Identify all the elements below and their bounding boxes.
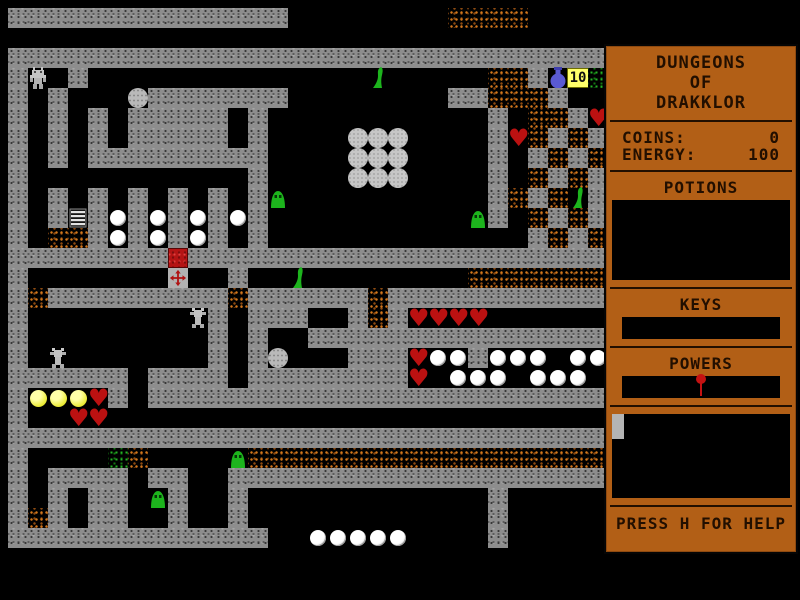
- wall-tile: [488, 168, 508, 188]
- wall-tile: [528, 148, 548, 168]
- wall-tile: [568, 48, 588, 68]
- wall-tile: [8, 428, 28, 448]
- slime-item: [368, 68, 388, 88]
- wall-tile: [48, 488, 68, 508]
- wall-tile: [368, 328, 388, 348]
- wall-tile: [48, 208, 68, 228]
- wall-tile: [468, 468, 488, 488]
- wall-tile: [408, 388, 428, 408]
- wall-tile: [568, 288, 588, 308]
- wall-tile: [208, 88, 228, 108]
- powers-slot: [622, 376, 780, 398]
- rubble-tile: [368, 448, 388, 468]
- title-line-3: DRAKKLOR: [606, 93, 796, 113]
- rubble-tile: [548, 108, 568, 128]
- wall-tile: [308, 288, 328, 308]
- help-text: PRESS H FOR HELP: [606, 514, 796, 533]
- wall-tile: [168, 108, 188, 128]
- wall-tile: [528, 68, 548, 88]
- wall-tile: [8, 168, 28, 188]
- wall-tile: [428, 428, 448, 448]
- wall-tile: [48, 368, 68, 388]
- rubble-tile: [528, 88, 548, 108]
- wall-tile: [508, 468, 528, 488]
- wall-tile: [288, 308, 308, 328]
- wall-tile: [348, 48, 368, 68]
- wall-tile: [488, 248, 508, 268]
- wall-tile: [368, 468, 388, 488]
- pearl-item: [108, 228, 128, 248]
- wall-tile: [508, 328, 528, 348]
- wall-tile: [68, 468, 88, 488]
- wall-tile: [208, 428, 228, 448]
- wall-tile: [88, 228, 108, 248]
- rubble-tile: [508, 268, 528, 288]
- wall-tile: [208, 228, 228, 248]
- wall-tile: [468, 428, 488, 448]
- wall-tile: [428, 328, 448, 348]
- wall-tile: [448, 48, 468, 68]
- rubble-tile: [488, 8, 508, 28]
- wall-tile: [248, 8, 268, 28]
- wall-tile: [488, 468, 508, 488]
- wall-tile: [208, 248, 228, 268]
- stone-ball-item: [368, 148, 388, 168]
- wall-tile: [208, 328, 228, 348]
- wall-tile: [248, 208, 268, 228]
- wall-tile: [308, 248, 328, 268]
- wall-tile: [128, 108, 148, 128]
- boulder-item: [128, 88, 148, 108]
- wall-tile: [548, 248, 568, 268]
- wall-tile: [28, 8, 48, 28]
- wall-tile: [328, 368, 348, 388]
- wall-tile: [128, 128, 148, 148]
- wall-tile: [308, 468, 328, 488]
- wall-tile: [88, 128, 108, 148]
- wall-tile: [488, 388, 508, 408]
- rubble-tile: [48, 228, 68, 248]
- divider: [610, 405, 792, 407]
- wall-tile: [88, 248, 108, 268]
- wall-tile: [588, 288, 608, 308]
- rubble-tile: [448, 8, 468, 28]
- rubble-tile: [528, 208, 548, 228]
- wall-tile: [88, 428, 108, 448]
- wall-tile: [8, 128, 28, 148]
- wall-tile: [48, 188, 68, 208]
- wall-tile: [8, 268, 28, 288]
- wall-tile: [8, 488, 28, 508]
- wall-tile: [248, 308, 268, 328]
- energy-label: ENERGY:: [622, 146, 696, 163]
- rubble-tile: [508, 68, 528, 88]
- wall-tile: [548, 288, 568, 308]
- wall-tile: [488, 428, 508, 448]
- wall-tile: [268, 88, 288, 108]
- wall-tile: [48, 248, 68, 268]
- wall-tile: [68, 288, 88, 308]
- wall-tile: [168, 508, 188, 528]
- wall-tile: [68, 368, 88, 388]
- wall-tile: [148, 8, 168, 28]
- wall-tile: [348, 348, 368, 368]
- slime-eyed-item: [268, 188, 288, 208]
- wall-tile: [68, 428, 88, 448]
- wall-tile: [428, 468, 448, 488]
- wall-tile: [548, 168, 568, 188]
- rubble-tile: [448, 448, 468, 468]
- wall-tile: [588, 428, 608, 448]
- wall-tile: [268, 368, 288, 388]
- wall-tile: [228, 528, 248, 548]
- wall-tile: [208, 368, 228, 388]
- wall-tile: [28, 528, 48, 548]
- wall-tile: [288, 388, 308, 408]
- wall-tile: [168, 528, 188, 548]
- pearl-item: [108, 208, 128, 228]
- heart-item: ♥: [408, 308, 428, 328]
- wall-tile: [248, 328, 268, 348]
- heart-item: ♥: [588, 108, 608, 128]
- wall-tile: [288, 428, 308, 448]
- wall-tile: [268, 288, 288, 308]
- wall-tile: [568, 248, 588, 268]
- stone-ball-item: [368, 168, 388, 188]
- wall-tile: [448, 248, 468, 268]
- rubble-tile: [228, 288, 248, 308]
- wall-tile: [108, 48, 128, 68]
- ladder-item: [68, 208, 88, 228]
- wall-tile: [528, 288, 548, 308]
- stone-ball-item: [388, 168, 408, 188]
- wall-tile: [508, 428, 528, 448]
- wall-tile: [248, 228, 268, 248]
- moss-tile: [588, 68, 608, 88]
- wall-tile: [408, 468, 428, 488]
- red-chest-item: [168, 248, 188, 268]
- wall-tile: [128, 428, 148, 448]
- wall-tile: [508, 248, 528, 268]
- mech-item: [188, 308, 208, 328]
- stone-ball-item: [348, 168, 368, 188]
- wall-tile: [108, 388, 128, 408]
- wall-tile: [328, 48, 348, 68]
- pearl-item: [148, 228, 168, 248]
- wall-tile: [288, 368, 308, 388]
- pearl-item: [548, 368, 568, 388]
- wall-tile: [148, 148, 168, 168]
- wall-tile: [88, 208, 108, 228]
- wall-tile: [148, 468, 168, 488]
- wall-tile: [108, 8, 128, 28]
- wall-tile: [108, 528, 128, 548]
- heart-item: ♥: [88, 408, 108, 428]
- wall-tile: [368, 348, 388, 368]
- wall-tile: [388, 328, 408, 348]
- wall-tile: [428, 248, 448, 268]
- rubble-tile: [548, 148, 568, 168]
- rubble-tile: [508, 8, 528, 28]
- wall-tile: [88, 488, 108, 508]
- wall-tile: [8, 368, 28, 388]
- wall-tile: [288, 48, 308, 68]
- wall-tile: [8, 48, 28, 68]
- pearl-item: [328, 528, 348, 548]
- wall-tile: [388, 428, 408, 448]
- wall-tile: [548, 388, 568, 408]
- potions-slot: [612, 200, 790, 280]
- rubble-tile: [288, 448, 308, 468]
- wall-tile: [8, 508, 28, 528]
- wall-tile: [568, 228, 588, 248]
- wall-tile: [248, 288, 268, 308]
- wall-tile: [208, 128, 228, 148]
- wall-tile: [588, 128, 608, 148]
- wall-tile: [468, 88, 488, 108]
- pearl-item: [308, 528, 328, 548]
- wall-tile: [168, 88, 188, 108]
- wall-tile: [168, 368, 188, 388]
- stone-ball-item: [368, 128, 388, 148]
- wall-tile: [568, 108, 588, 128]
- wall-tile: [488, 288, 508, 308]
- rubble-tile: [508, 448, 528, 468]
- wall-tile: [468, 248, 488, 268]
- rubble-tile: [488, 268, 508, 288]
- wall-tile: [188, 108, 208, 128]
- wall-tile: [88, 48, 108, 68]
- rubble-tile: [388, 448, 408, 468]
- wall-tile: [88, 508, 108, 528]
- wall-tile: [488, 48, 508, 68]
- wall-tile: [228, 8, 248, 28]
- energy-value: 100: [748, 146, 780, 163]
- wall-tile: [188, 8, 208, 28]
- wall-tile: [588, 388, 608, 408]
- wall-tile: [148, 128, 168, 148]
- wall-tile: [408, 428, 428, 448]
- wall-tile: [348, 468, 368, 488]
- wall-tile: [368, 388, 388, 408]
- wall-tile: [88, 8, 108, 28]
- wall-tile: [128, 288, 148, 308]
- wall-tile: [8, 8, 28, 28]
- wall-tile: [308, 428, 328, 448]
- rubble-tile: [528, 128, 548, 148]
- rubble-tile: [68, 228, 88, 248]
- wall-tile: [528, 248, 548, 268]
- rubble-tile: [588, 228, 608, 248]
- wall-tile: [488, 328, 508, 348]
- wall-tile: [488, 528, 508, 548]
- wall-tile: [548, 128, 568, 148]
- wall-tile: [388, 288, 408, 308]
- wall-tile: [48, 528, 68, 548]
- rubble-tile: [328, 448, 348, 468]
- wall-tile: [68, 248, 88, 268]
- power-pin-icon: [696, 374, 706, 398]
- wall-tile: [568, 328, 588, 348]
- wall-tile: [208, 48, 228, 68]
- wall-tile: [168, 208, 188, 228]
- stone-ball-item: [388, 148, 408, 168]
- wall-tile: [528, 188, 548, 208]
- wall-tile: [208, 208, 228, 228]
- wall-tile: [148, 48, 168, 68]
- rubble-tile: [368, 308, 388, 328]
- wall-tile: [228, 388, 248, 408]
- wall-tile: [8, 208, 28, 228]
- wall-tile: [248, 128, 268, 148]
- wall-tile: [48, 428, 68, 448]
- wall-tile: [548, 48, 568, 68]
- heart-item: ♥: [68, 408, 88, 428]
- wall-tile: [148, 428, 168, 448]
- rubble-tile: [508, 188, 528, 208]
- slime-item: [288, 268, 308, 288]
- wall-tile: [408, 48, 428, 68]
- pearl-item: [228, 208, 248, 228]
- keys-slot: [622, 317, 780, 339]
- wall-tile: [348, 328, 368, 348]
- wall-tile: [28, 48, 48, 68]
- wall-tile: [128, 48, 148, 68]
- wall-tile: [268, 48, 288, 68]
- wall-tile: [48, 288, 68, 308]
- divider: [610, 287, 792, 289]
- wall-tile: [468, 328, 488, 348]
- rubble-tile: [408, 448, 428, 468]
- wall-tile: [388, 368, 408, 388]
- rubble-tile: [368, 288, 388, 308]
- rubble-tile: [308, 448, 328, 468]
- keys-heading: KEYS: [606, 296, 796, 314]
- heart-item: ♥: [408, 368, 428, 388]
- wall-tile: [488, 188, 508, 208]
- slime-eyed-item: [228, 448, 248, 468]
- wall-tile: [588, 468, 608, 488]
- wall-tile: [548, 428, 568, 448]
- wall-tile: [528, 468, 548, 488]
- wall-tile: [88, 108, 108, 128]
- wall-tile: [388, 48, 408, 68]
- wall-tile: [508, 388, 528, 408]
- wall-tile: [488, 128, 508, 148]
- heart-item: ♥: [468, 308, 488, 328]
- wall-tile: [128, 148, 148, 168]
- wall-tile: [248, 468, 268, 488]
- wall-tile: [8, 188, 28, 208]
- wall-tile: [568, 148, 588, 168]
- wall-tile: [308, 328, 328, 348]
- wall-tile: [268, 388, 288, 408]
- slime-item: [568, 188, 588, 208]
- wall-tile: [188, 428, 208, 448]
- wall-tile: [228, 488, 248, 508]
- divider: [610, 170, 792, 172]
- rubble-tile: [248, 448, 268, 468]
- wall-tile: [28, 368, 48, 388]
- rubble-tile: [588, 448, 608, 468]
- wall-tile: [248, 368, 268, 388]
- wall-tile: [148, 248, 168, 268]
- wall-tile: [148, 288, 168, 308]
- pearl-item: [368, 528, 388, 548]
- wall-tile: [48, 468, 68, 488]
- boulder-item: [268, 348, 288, 368]
- moss-tile: [108, 448, 128, 468]
- wall-tile: [248, 388, 268, 408]
- coins-label: COINS:: [622, 129, 686, 146]
- wall-tile: [128, 188, 148, 208]
- wall-tile: [8, 468, 28, 488]
- wall-tile: [408, 248, 428, 268]
- wall-tile: [388, 468, 408, 488]
- wall-tile: [68, 8, 88, 28]
- wall-tile: [368, 48, 388, 68]
- wall-tile: [28, 248, 48, 268]
- wall-tile: [488, 508, 508, 528]
- wall-tile: [168, 288, 188, 308]
- wall-tile: [188, 368, 208, 388]
- potions-heading: POTIONS: [606, 179, 796, 197]
- rubble-tile: [548, 448, 568, 468]
- dungeon-map[interactable]: 10♥♥♥♥♥♥♥♥♥♥♥: [8, 8, 608, 600]
- pearl-item: [528, 368, 548, 388]
- wall-tile: [348, 368, 368, 388]
- wall-tile: [88, 528, 108, 548]
- wall-tile: [248, 148, 268, 168]
- wall-tile: [428, 388, 448, 408]
- rubble-tile: [548, 268, 568, 288]
- wall-tile: [48, 508, 68, 528]
- wall-tile: [488, 108, 508, 128]
- wall-tile: [228, 508, 248, 528]
- wall-tile: [108, 148, 128, 168]
- wall-tile: [588, 328, 608, 348]
- wall-tile: [548, 328, 568, 348]
- divider: [610, 120, 792, 122]
- title-line-2: OF: [606, 73, 796, 93]
- wall-tile: [508, 288, 528, 308]
- rubble-tile: [28, 508, 48, 528]
- wall-tile: [188, 148, 208, 168]
- wall-tile: [168, 148, 188, 168]
- wall-tile: [348, 308, 368, 328]
- title-line-1: DUNGEONS: [606, 53, 796, 73]
- wall-tile: [168, 8, 188, 28]
- game-title: DUNGEONS OF DRAKKLOR: [606, 53, 796, 113]
- stone-ball-item: [348, 128, 368, 148]
- rubble-tile: [528, 108, 548, 128]
- pearl-item: [568, 348, 588, 368]
- mech-item: [48, 348, 68, 368]
- wall-tile: [48, 128, 68, 148]
- wall-tile: [188, 48, 208, 68]
- pearl-item: [488, 368, 508, 388]
- wall-tile: [248, 168, 268, 188]
- wall-tile: [248, 108, 268, 128]
- wall-tile: [328, 428, 348, 448]
- wall-tile: [168, 428, 188, 448]
- pearl-item: [468, 368, 488, 388]
- wall-tile: [48, 48, 68, 68]
- player-robot-item: [28, 68, 48, 88]
- wall-tile: [248, 88, 268, 108]
- wall-tile: [48, 8, 68, 28]
- rubble-tile: [528, 448, 548, 468]
